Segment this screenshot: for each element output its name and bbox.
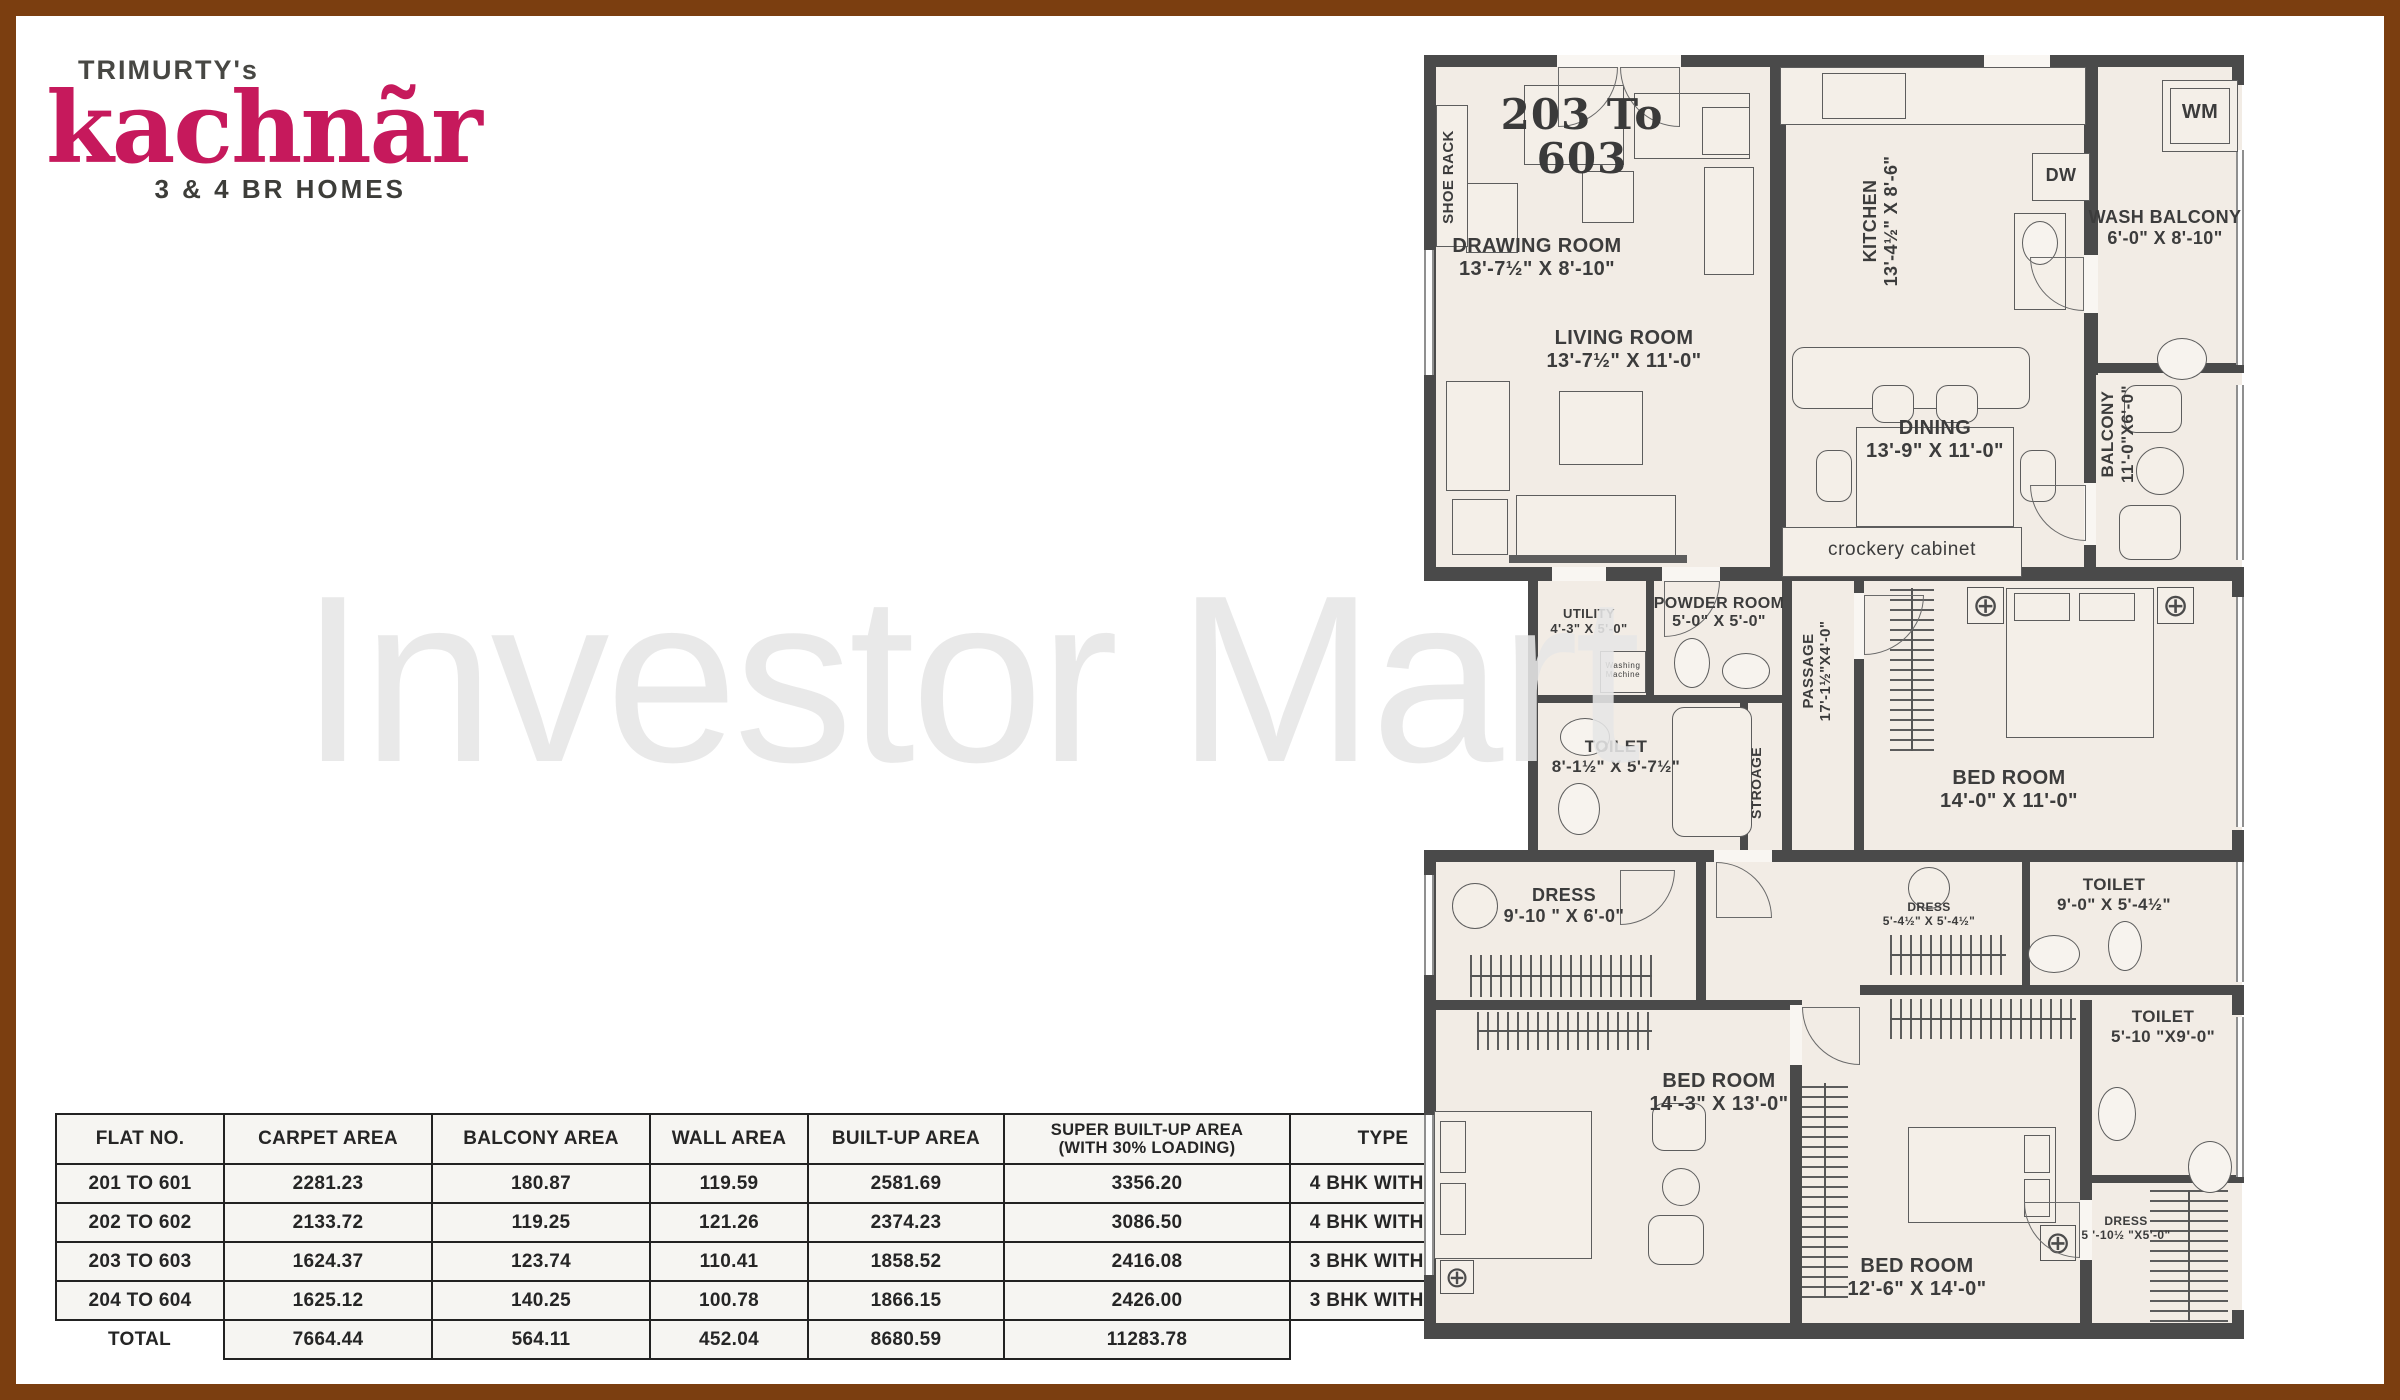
furniture-ellipse bbox=[1722, 653, 1770, 689]
label-wash-balcony: WASH BALCONY6'-0" X 8'-10" bbox=[2086, 207, 2244, 248]
label-drawing-room: DRAWING ROOM13'-7½" X 8'-10" bbox=[1432, 235, 1642, 281]
ceiling-fan-icon: ⊕ bbox=[1440, 1260, 1474, 1294]
door-opening bbox=[1552, 567, 1606, 581]
table-cell: 121.26 bbox=[650, 1203, 808, 1242]
table-cell: 8680.59 bbox=[808, 1320, 1004, 1359]
furniture-rect bbox=[2079, 593, 2135, 621]
label-crockery-cabinet: crockery cabinet bbox=[1786, 539, 2018, 561]
furniture-rect bbox=[1452, 499, 1508, 555]
furniture-ellipse bbox=[2028, 935, 2080, 973]
table-cell: 140.25 bbox=[432, 1281, 650, 1320]
door-opening bbox=[2084, 255, 2098, 313]
table-cell: 7664.44 bbox=[224, 1320, 432, 1359]
window bbox=[1424, 1115, 1434, 1275]
furniture-rect bbox=[1822, 73, 1906, 119]
door-opening bbox=[1854, 593, 1864, 659]
window bbox=[2236, 150, 2244, 365]
furniture-rect bbox=[2024, 1135, 2050, 1173]
wall bbox=[1860, 985, 2244, 995]
floor-plan: ⊕⊕⊕⊕203 To603SHOE RACKDRAWING ROOM13'-7½… bbox=[1424, 55, 2246, 1370]
label-washing-machine: WashingMachine bbox=[1602, 661, 1644, 679]
table-header-cell: BUILT-UP AREA bbox=[808, 1114, 1004, 1164]
brand-logo: TRIMURTY's kachnãr 3 & 4 BR HOMES bbox=[46, 55, 406, 205]
table-header-cell: WALL AREA bbox=[650, 1114, 808, 1164]
table-cell: 2374.23 bbox=[808, 1203, 1004, 1242]
wardrobe-hatch bbox=[1477, 1012, 1652, 1050]
window bbox=[2236, 862, 2244, 982]
wardrobe-hatch bbox=[1890, 935, 2006, 975]
ceiling-fan-icon: ⊕ bbox=[2157, 587, 2194, 624]
furniture-circle bbox=[1662, 1168, 1700, 1206]
table-header-cell: FLAT NO. bbox=[56, 1114, 224, 1164]
furniture-rect bbox=[1446, 381, 1510, 491]
table-cell: 11283.78 bbox=[1004, 1320, 1290, 1359]
label-bed-room-1: BED ROOM14'-0" X 11'-0" bbox=[1904, 767, 2114, 813]
label-shoe-rack: SHOE RACK bbox=[1440, 107, 1457, 247]
table-cell: 1624.37 bbox=[224, 1242, 432, 1281]
wall bbox=[1424, 1000, 1800, 1010]
door-opening bbox=[1790, 1005, 1802, 1065]
table-cell: 3086.50 bbox=[1004, 1203, 1290, 1242]
label-dress-3: DRESS5 '-10½ "X5'-0" bbox=[2060, 1215, 2192, 1243]
furniture-rect bbox=[1559, 391, 1643, 465]
brand-name: kachnãr bbox=[46, 86, 406, 172]
label-passage: PASSAGE17'-1½"X4'-0" bbox=[1800, 605, 1835, 737]
label-unit-number: 203 To603 bbox=[1472, 93, 1692, 181]
wardrobe-hatch bbox=[2150, 1190, 2228, 1322]
label-toilet-2: TOILET9'-0" X 5'-4½" bbox=[2034, 875, 2194, 914]
label-toilet-1: TOILET8'-1½" X 5'-7½" bbox=[1536, 737, 1696, 776]
furniture-rect bbox=[1704, 167, 1754, 275]
wardrobe-hatch bbox=[1470, 955, 1652, 997]
area-statement-table: FLAT NO.CARPET AREABALCONY AREAWALL AREA… bbox=[55, 1113, 1477, 1360]
table-cell: 2581.69 bbox=[808, 1164, 1004, 1203]
table-cell: 2281.23 bbox=[224, 1164, 432, 1203]
table-cell: 2426.00 bbox=[1004, 1281, 1290, 1320]
label-dw: DW bbox=[2032, 165, 2090, 186]
door-opening bbox=[1557, 55, 1681, 67]
ceiling-fan-icon: ⊕ bbox=[1967, 587, 2004, 624]
label-storage: STROAGE bbox=[1748, 737, 1764, 829]
table-cell: 204 TO 604 bbox=[56, 1281, 224, 1320]
table-cell: 119.25 bbox=[432, 1203, 650, 1242]
furniture-rrect bbox=[2119, 505, 2181, 560]
table-cell: 201 TO 601 bbox=[56, 1164, 224, 1203]
furniture-ellipse bbox=[2108, 921, 2142, 971]
table-cell: 2416.08 bbox=[1004, 1242, 1290, 1281]
table-header-cell: BALCONY AREA bbox=[432, 1114, 650, 1164]
wall bbox=[2232, 567, 2244, 597]
window bbox=[2236, 597, 2244, 827]
furniture-ellipse bbox=[1674, 638, 1710, 688]
wall bbox=[1424, 1323, 2244, 1339]
table-header-cell: CARPET AREA bbox=[224, 1114, 432, 1164]
label-kitchen: KITCHEN13'-4½" X 8'-6" bbox=[1860, 153, 1901, 289]
table-cell: 3356.20 bbox=[1004, 1164, 1290, 1203]
table-cell: 123.74 bbox=[432, 1242, 650, 1281]
label-living-room: LIVING ROOM13'-7½" X 11'-0" bbox=[1519, 327, 1729, 373]
table-cell: 202 TO 602 bbox=[56, 1203, 224, 1242]
label-toilet-3: TOILET5'-10 "X9'-0" bbox=[2088, 1007, 2238, 1046]
table-cell: 564.11 bbox=[432, 1320, 650, 1359]
furniture-rect bbox=[1702, 107, 1750, 155]
table-cell: 1625.12 bbox=[224, 1281, 432, 1320]
furniture-ellipse bbox=[1558, 783, 1600, 835]
table-cell: 452.04 bbox=[650, 1320, 808, 1359]
table-cell: 180.87 bbox=[432, 1164, 650, 1203]
table-cell: 1858.52 bbox=[808, 1242, 1004, 1281]
table-cell: 2133.72 bbox=[224, 1203, 432, 1242]
furniture-circle bbox=[2136, 447, 2184, 495]
furniture-ellipse bbox=[2157, 338, 2207, 380]
furniture-ellipse bbox=[2188, 1141, 2232, 1193]
window bbox=[2236, 385, 2244, 560]
label-bed-room-3: BED ROOM12'-6" X 14'-0" bbox=[1812, 1255, 2022, 1301]
label-dress-1: DRESS9'-10 " X 6'-0" bbox=[1479, 885, 1649, 926]
furniture-rect bbox=[1516, 495, 1676, 557]
table-cell: 100.78 bbox=[650, 1281, 808, 1320]
wall bbox=[1424, 850, 2244, 862]
door-opening bbox=[1662, 567, 1720, 581]
furniture-ellipse bbox=[2098, 1087, 2136, 1141]
wall bbox=[2080, 1000, 2092, 1335]
label-powder-room: POWDER ROOM5'-0" X 5'-0" bbox=[1650, 595, 1788, 632]
table-header-cell: SUPER BUILT-UP AREA(WITH 30% LOADING) bbox=[1004, 1114, 1290, 1164]
furniture-rect bbox=[1440, 1121, 1466, 1173]
brochure-page: TRIMURTY's kachnãr 3 & 4 BR HOMES FLAT N… bbox=[0, 0, 2400, 1400]
wall bbox=[1696, 850, 1706, 1000]
table-cell: 110.41 bbox=[650, 1242, 808, 1281]
wall bbox=[2232, 1310, 2244, 1339]
label-bed-room-2: BED ROOM14'-3" X 13'-0" bbox=[1614, 1070, 1824, 1116]
furniture-rect bbox=[2014, 593, 2070, 621]
table-cell: 119.59 bbox=[650, 1164, 808, 1203]
wall bbox=[2022, 850, 2030, 987]
label-dining: DINING13'-9" X 11'-0" bbox=[1842, 417, 2028, 463]
label-utility: UTILITY4'-3" X 5'-0" bbox=[1536, 607, 1642, 637]
wall bbox=[1424, 55, 2244, 67]
wall bbox=[2232, 830, 2244, 862]
label-wm: WM bbox=[2162, 101, 2238, 124]
furniture-line bbox=[1509, 555, 1687, 563]
table-cell: 203 TO 603 bbox=[56, 1242, 224, 1281]
furniture-rect bbox=[1440, 1183, 1466, 1235]
label-dress-2: DRESS5'-4½" X 5'-4½" bbox=[1864, 901, 1994, 929]
table-cell: 1866.15 bbox=[808, 1281, 1004, 1320]
door-opening bbox=[1984, 55, 2050, 67]
wardrobe-hatch bbox=[1890, 999, 2076, 1039]
wall bbox=[2084, 567, 2244, 581]
window bbox=[1424, 875, 1434, 975]
table-cell: TOTAL bbox=[56, 1320, 224, 1359]
label-balcony: BALCONY11'-0"X6'-0" bbox=[2098, 373, 2137, 495]
wall bbox=[1528, 695, 1790, 703]
furniture-rrect bbox=[1648, 1215, 1704, 1265]
door-opening bbox=[1714, 850, 1772, 862]
